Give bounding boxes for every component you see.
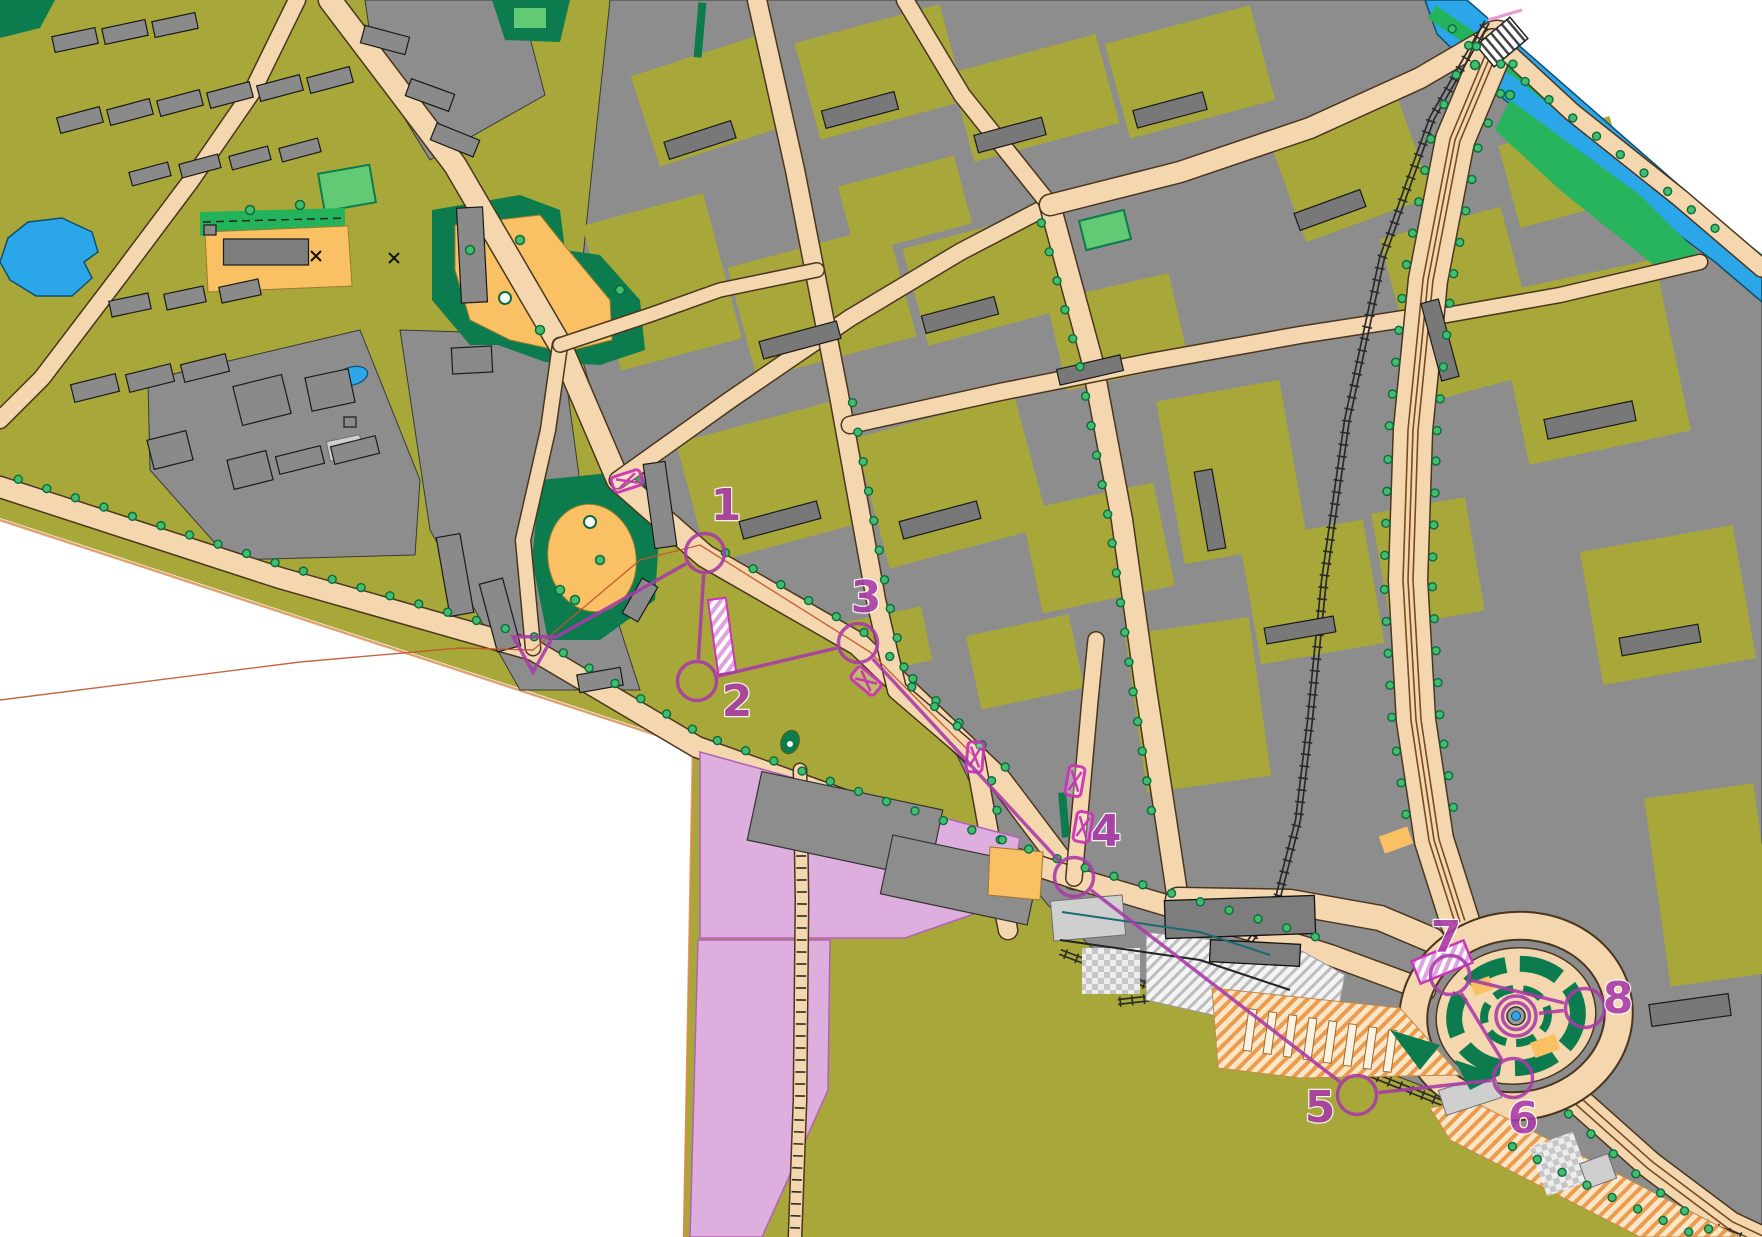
tree-dot	[931, 702, 939, 710]
tree-dot	[865, 487, 873, 495]
rail-main-line-tie	[1132, 995, 1133, 1005]
tree-dot	[1381, 551, 1389, 559]
orienteering-map-screenshot: 12345678	[0, 0, 1762, 1237]
tree-dot	[1445, 772, 1453, 780]
tree-dot	[1402, 810, 1410, 818]
tree-dot	[882, 797, 890, 805]
tree-dot	[1025, 845, 1033, 853]
tree-dot	[415, 600, 423, 608]
playground-tl-building-rect	[224, 239, 309, 265]
tree-dot	[1509, 60, 1517, 68]
tree-dot	[1659, 1216, 1667, 1224]
suburb-buildings-rect	[344, 417, 356, 427]
tree-dot	[1143, 777, 1151, 785]
tree-dot	[1129, 688, 1137, 696]
tree-dot	[1432, 647, 1440, 655]
tree-dot	[328, 575, 336, 583]
tree-dot	[637, 695, 645, 703]
tree-dot	[1385, 422, 1393, 430]
tree-dot	[909, 675, 917, 683]
tree-dot	[43, 485, 51, 493]
tree-dot	[1608, 1193, 1616, 1201]
rail-main-line-tie	[1144, 994, 1145, 1004]
park-tree-dots-dot	[466, 246, 475, 255]
tree-dot	[1657, 1189, 1665, 1197]
station-building-rect	[1209, 940, 1300, 967]
tree-dot	[559, 649, 567, 657]
tree-dot	[1395, 326, 1403, 334]
tree-dot	[1521, 77, 1529, 85]
tree-dot	[299, 567, 307, 575]
rail-main-line-tie	[1316, 611, 1326, 612]
tree-dot	[1430, 615, 1438, 623]
control-number-4: 4	[1091, 806, 1122, 857]
tree-dot	[1117, 599, 1125, 607]
tree-dot	[1386, 681, 1394, 689]
park-tree-dots-dot	[296, 201, 305, 210]
tree-dot	[1254, 915, 1262, 923]
tree-dot	[875, 546, 883, 554]
tree-dot	[71, 494, 79, 502]
tree-dot	[1452, 71, 1460, 79]
tree-dot	[1001, 763, 1009, 771]
tree-dot	[1446, 299, 1454, 307]
tree-dot	[1082, 392, 1090, 400]
tree-dot	[243, 549, 251, 557]
tree-dot	[1664, 187, 1672, 195]
tree-dot	[1474, 144, 1482, 152]
rail-main-line-tie	[1311, 658, 1321, 659]
tree-dot	[1634, 1205, 1642, 1213]
tree-dot	[1685, 1228, 1693, 1236]
tree-dot	[1439, 363, 1447, 371]
rail-main-line-tie	[1309, 682, 1319, 683]
control-number-5: 5	[1305, 1082, 1336, 1133]
tree-dot	[770, 757, 778, 765]
tree-dot	[1449, 803, 1457, 811]
tree-dot	[1558, 1168, 1566, 1176]
tree-dot	[1569, 114, 1577, 122]
tree-dot	[1383, 487, 1391, 495]
rail-main-line-tie	[1120, 997, 1121, 1007]
tree-dot	[1110, 872, 1118, 880]
tree-dot	[1093, 451, 1101, 459]
tree-dot	[1433, 427, 1441, 435]
tree-dot	[1443, 331, 1451, 339]
tree-dot	[859, 458, 867, 466]
tree-dot	[472, 616, 480, 624]
park-tree-dots-dot	[596, 556, 605, 565]
tree-dot	[749, 565, 757, 573]
tree-dot	[1462, 207, 1470, 215]
yellow-building-area-shape	[988, 847, 1043, 900]
rail-main-line-tie	[1308, 694, 1318, 695]
crossing-point-symbol	[1065, 765, 1086, 797]
suburb-buildings-rect	[451, 346, 492, 374]
tree-dot	[1196, 898, 1204, 906]
teardrop-pond-center-dot	[787, 741, 793, 747]
tree-dot	[911, 807, 919, 815]
tree-dot	[444, 608, 452, 616]
tree-dot	[1409, 229, 1417, 237]
tree-dot	[214, 540, 222, 548]
tree-dot	[1434, 679, 1442, 687]
tree-dot	[1429, 553, 1437, 561]
canopy-light-grey-rect	[1050, 895, 1125, 941]
monument-blue	[1512, 1012, 1521, 1021]
tree-dot	[585, 664, 593, 672]
tree-dot	[1061, 306, 1069, 314]
yellow-building-area	[988, 847, 1043, 900]
tree-dot	[1098, 481, 1106, 489]
tree-dot	[1428, 583, 1436, 591]
park-tree-dots-dot	[1506, 91, 1515, 100]
tree-dot	[386, 592, 394, 600]
control-number-7: 7	[1431, 912, 1462, 963]
tree-dot	[1593, 132, 1601, 140]
tree-dot	[1616, 151, 1624, 159]
park-tree-dots-dot	[571, 596, 580, 605]
lawn-top-rect	[513, 7, 547, 29]
tree-dot	[1430, 521, 1438, 529]
tree-dot	[742, 747, 750, 755]
tree-dot	[1450, 270, 1458, 278]
tree-dot	[832, 613, 840, 621]
tree-dot	[893, 634, 901, 642]
tree-dot	[886, 605, 894, 613]
tree-dot	[1104, 510, 1112, 518]
tree-dot	[1440, 740, 1448, 748]
rail-main-line-tie	[1310, 670, 1320, 671]
tree-dot	[1147, 807, 1155, 815]
suburb-buildings-rect	[457, 207, 488, 303]
control-number-2: 2	[722, 676, 753, 727]
park-tree-dots-dot	[516, 236, 525, 245]
tree-dot	[1168, 889, 1176, 897]
courtyards-rect	[1240, 520, 1385, 665]
tree-dot	[185, 531, 193, 539]
tree-dot	[1139, 881, 1147, 889]
tree-dot	[1384, 455, 1392, 463]
tree-dot	[1134, 718, 1142, 726]
tree-dot	[854, 428, 862, 436]
tree-dot	[1705, 1225, 1713, 1233]
tree-dot	[1403, 261, 1411, 269]
tree-dot	[1484, 119, 1492, 127]
tree-dot	[1076, 363, 1084, 371]
tree-dot	[1397, 779, 1405, 787]
tree-dot	[1533, 1155, 1541, 1163]
tree-dot	[993, 806, 1001, 814]
teardrop-pond-center	[787, 741, 793, 747]
tree-dot	[1431, 489, 1439, 497]
white-trees-dot	[499, 292, 511, 304]
tree-dot	[1609, 1150, 1617, 1158]
control-number-6: 6	[1508, 1093, 1539, 1144]
control-number-8: 8	[1603, 973, 1634, 1024]
tree-dot	[870, 517, 878, 525]
tree-dot	[1448, 25, 1456, 33]
park-tree-dots-dot	[246, 206, 255, 215]
tree-dot	[611, 679, 619, 687]
tree-dot	[1087, 422, 1095, 430]
tree-dot	[713, 737, 721, 745]
tree-dot	[777, 581, 785, 589]
tree-dot	[1440, 100, 1448, 108]
tree-dot	[855, 787, 863, 795]
tree-dot	[886, 652, 894, 660]
tree-dot	[1468, 175, 1476, 183]
tree-dot	[900, 663, 908, 671]
tree-dot	[688, 725, 696, 733]
tree-dot	[826, 777, 834, 785]
tree-dot	[968, 826, 976, 834]
tree-dot	[1398, 294, 1406, 302]
tree-dot	[1415, 198, 1423, 206]
tree-dot	[1225, 906, 1233, 914]
tree-dot	[1436, 395, 1444, 403]
tree-dot	[1283, 924, 1291, 932]
rail-main-line-tie	[1312, 646, 1322, 647]
tree-dot	[1583, 1181, 1591, 1189]
tree-dot	[1456, 238, 1464, 246]
tree-dot	[1497, 60, 1505, 68]
courtyards-rect	[1580, 525, 1756, 685]
tree-dot	[663, 710, 671, 718]
tree-dot	[939, 817, 947, 825]
park-tree-dots-dot	[1471, 61, 1480, 70]
monument-blue-dot	[1512, 1012, 1521, 1021]
tree-dot	[1045, 248, 1053, 256]
tree-dot	[1421, 166, 1429, 174]
tree-dot	[953, 722, 961, 730]
tree-dot	[357, 584, 365, 592]
tree-dot	[860, 628, 868, 636]
tree-dot	[1037, 219, 1045, 227]
park-tree-dots-dot	[556, 586, 565, 595]
checker-paving-rect	[1082, 948, 1140, 994]
tree-dot	[14, 475, 22, 483]
tree-dot	[1311, 933, 1319, 941]
tree-dot	[1565, 1110, 1573, 1118]
playground-tl-building	[224, 239, 309, 265]
tree-dot	[1121, 628, 1129, 636]
bridge-pink-edge-line	[1488, 10, 1522, 20]
tree-dot	[881, 576, 889, 584]
tree-dot	[805, 597, 813, 605]
tree-dot	[100, 503, 108, 511]
tree-dot	[1640, 169, 1648, 177]
tree-dot	[1497, 90, 1505, 98]
bridge-pink-edge	[1488, 10, 1522, 20]
tree-dot	[157, 522, 165, 530]
tree-dot	[1053, 277, 1061, 285]
tree-dot	[908, 683, 916, 691]
tree-dot	[128, 512, 136, 520]
lawn-top-rect	[318, 165, 376, 211]
park-tree-dots-dot	[536, 326, 545, 335]
tree-dot	[1436, 711, 1444, 719]
tree-dot	[1687, 206, 1695, 214]
rail-main-line-tie	[1306, 706, 1316, 707]
suburb-buildings-rect	[204, 225, 216, 235]
tree-dot	[1427, 135, 1435, 143]
tree-dot	[1587, 1130, 1595, 1138]
tree-dot	[998, 836, 1006, 844]
tree-dot	[1681, 1207, 1689, 1215]
tree-dot	[1112, 569, 1120, 577]
tree-dot	[798, 767, 806, 775]
tree-dot	[1384, 649, 1392, 657]
tree-dot	[1432, 457, 1440, 465]
tree-dot	[501, 625, 509, 633]
park-tree-dots-dot	[616, 286, 625, 295]
rail-main-line-tie	[1317, 599, 1327, 600]
tree-dot	[1125, 658, 1133, 666]
rail-main-line-tie	[1305, 718, 1315, 719]
tree-dot	[1381, 585, 1389, 593]
tree-dot	[848, 399, 856, 407]
tree-dot	[1388, 390, 1396, 398]
station-building-rect	[1164, 895, 1315, 938]
tree-dot	[1069, 335, 1077, 343]
control-number-3: 3	[851, 572, 882, 623]
tree-dot	[271, 559, 279, 567]
map-canvas: 12345678	[0, 0, 1762, 1237]
tree-dot	[1392, 358, 1400, 366]
tree-dot	[1138, 747, 1146, 755]
tree-dot	[1388, 713, 1396, 721]
rail-main-line-tie	[1318, 587, 1328, 588]
tree-dot	[1382, 519, 1390, 527]
tree-dot	[1108, 539, 1116, 547]
tree-dot	[1711, 224, 1719, 232]
tree-dot	[1545, 96, 1553, 104]
control-number-1: 1	[711, 480, 742, 531]
tree-dot	[1472, 42, 1480, 50]
tree-dot	[1465, 41, 1473, 49]
tree-dot	[1382, 617, 1390, 625]
tree-dot	[1392, 747, 1400, 755]
white-trees-dot	[584, 516, 596, 528]
tree-dot	[1632, 1170, 1640, 1178]
